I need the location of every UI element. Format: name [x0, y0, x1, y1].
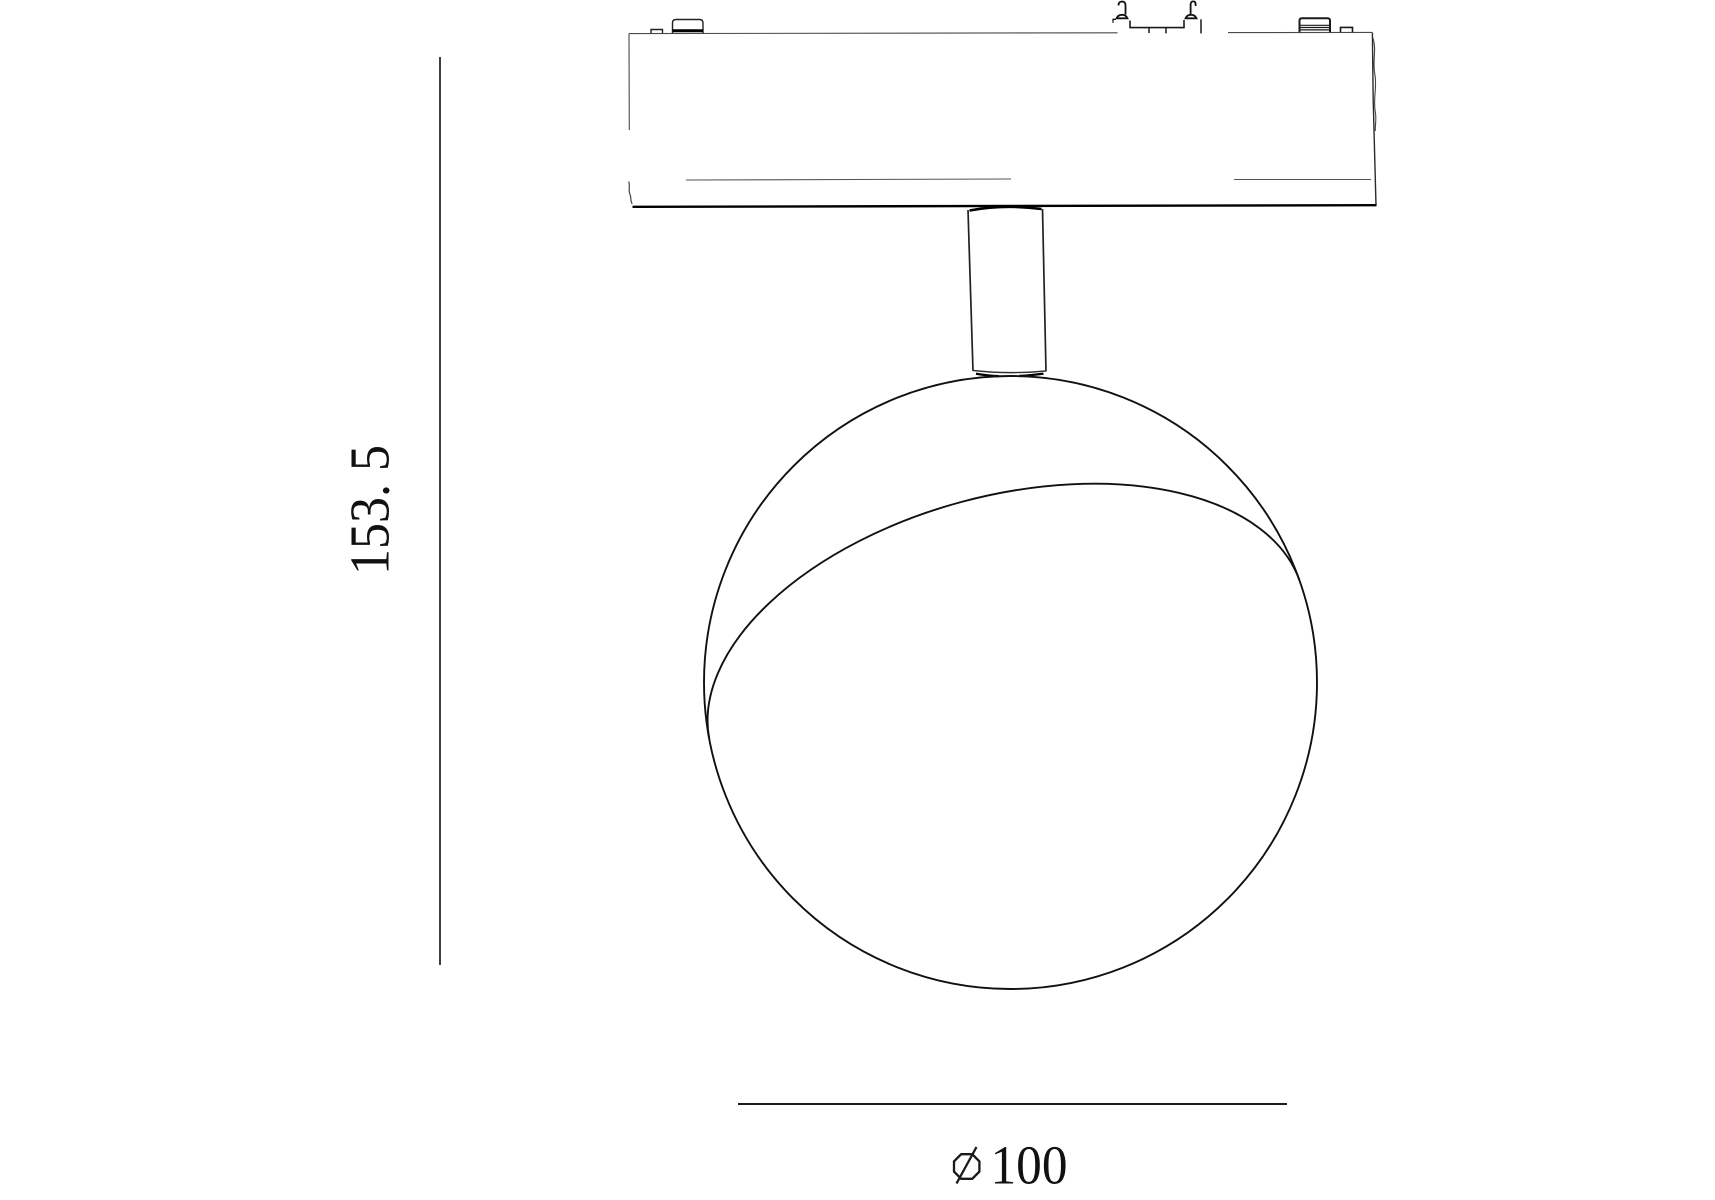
svg-text:153. 5: 153. 5: [340, 445, 402, 575]
svg-text:100: 100: [991, 1136, 1068, 1197]
